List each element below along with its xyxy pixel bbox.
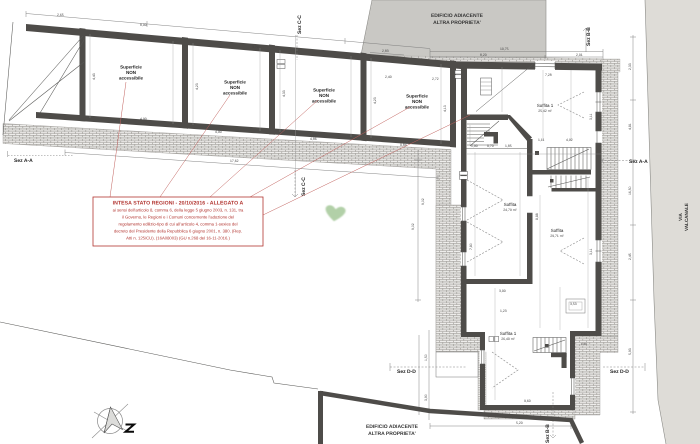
svg-text:3,11: 3,11 bbox=[589, 249, 593, 255]
svg-text:Sez C-C: Sez C-C bbox=[301, 177, 307, 196]
svg-text:NON: NON bbox=[319, 93, 329, 98]
svg-text:2,83: 2,83 bbox=[382, 49, 389, 53]
svg-text:NON: NON bbox=[412, 99, 422, 104]
svg-text:8,88: 8,88 bbox=[535, 213, 539, 220]
svg-text:0,70: 0,70 bbox=[487, 144, 494, 148]
svg-text:1,23: 1,23 bbox=[500, 309, 507, 313]
svg-text:16,50: 16,50 bbox=[628, 186, 632, 195]
svg-text:Sez D-D: Sez D-D bbox=[610, 369, 629, 375]
svg-text:Soffita: Soffita bbox=[504, 202, 517, 207]
svg-text:Sez A-A: Sez A-A bbox=[14, 158, 33, 164]
svg-text:Sez D-D: Sez D-D bbox=[397, 369, 416, 375]
svg-text:1,50: 1,50 bbox=[424, 354, 428, 361]
svg-text:accessibile: accessibile bbox=[405, 105, 430, 110]
svg-text:decreto del Presidente della R: decreto del Presidente della Repubblica … bbox=[114, 229, 242, 234]
svg-text:2,40: 2,40 bbox=[385, 75, 392, 79]
svg-text:1,90: 1,90 bbox=[471, 144, 478, 148]
svg-text:2,01: 2,01 bbox=[576, 53, 583, 57]
svg-text:Soffita 1: Soffita 1 bbox=[500, 331, 517, 336]
svg-text:5,93: 5,93 bbox=[628, 348, 632, 355]
svg-text:Atti n. 125/CU). (16A08003) (G: Atti n. 125/CU). (16A08003) (GU n.268 de… bbox=[126, 236, 230, 241]
svg-text:ALTRA PROPRIETA': ALTRA PROPRIETA' bbox=[368, 431, 416, 437]
svg-text:4,33: 4,33 bbox=[282, 90, 286, 97]
svg-text:regolamento edilizio-tipo di c: regolamento edilizio-tipo di cui all'art… bbox=[118, 222, 237, 227]
svg-text:2,65: 2,65 bbox=[57, 13, 64, 17]
svg-text:accessibile: accessibile bbox=[223, 91, 248, 96]
svg-text:Sez C-C: Sez C-C bbox=[297, 15, 303, 34]
svg-text:EDIFICIO ADIACENTE: EDIFICIO ADIACENTE bbox=[431, 13, 484, 19]
svg-text:accessibile: accessibile bbox=[312, 99, 337, 104]
svg-text:10,75: 10,75 bbox=[500, 47, 509, 51]
svg-text:26,40 m²: 26,40 m² bbox=[501, 337, 515, 341]
svg-text:17,62: 17,62 bbox=[230, 159, 239, 163]
svg-text:5,20: 5,20 bbox=[516, 421, 523, 425]
svg-text:29,71 m²: 29,71 m² bbox=[550, 234, 564, 238]
svg-text:3,90: 3,90 bbox=[424, 394, 428, 401]
svg-text:9,02: 9,02 bbox=[411, 223, 415, 230]
svg-text:accessibile: accessibile bbox=[119, 76, 144, 81]
svg-text:7,80: 7,80 bbox=[469, 243, 473, 250]
svg-text:2,72: 2,72 bbox=[432, 77, 439, 81]
svg-text:Sez B-B: Sez B-B bbox=[545, 424, 551, 443]
svg-text:4,13: 4,13 bbox=[443, 105, 447, 112]
svg-text:3,00: 3,00 bbox=[499, 289, 506, 293]
svg-text:VALCANALE: VALCANALE bbox=[684, 203, 689, 231]
svg-text:Superficie: Superficie bbox=[406, 94, 428, 99]
svg-text:ALTRA PROPRIETA': ALTRA PROPRIETA' bbox=[433, 20, 481, 26]
svg-text:7,28: 7,28 bbox=[545, 73, 552, 77]
svg-text:EDIFICIO ADIACENTE: EDIFICIO ADIACENTE bbox=[366, 424, 419, 430]
svg-text:1,60: 1,60 bbox=[581, 342, 587, 346]
svg-text:INTESA STATO REGIONI - 20/10/2: INTESA STATO REGIONI - 20/10/2016 - ALLE… bbox=[113, 201, 244, 207]
svg-text:NON: NON bbox=[126, 70, 136, 75]
svg-text:VIA: VIA bbox=[678, 212, 683, 220]
svg-text:Sez A-A: Sez A-A bbox=[629, 159, 648, 165]
svg-text:4,90: 4,90 bbox=[140, 117, 147, 121]
svg-text:Superficie: Superficie bbox=[313, 88, 335, 93]
svg-text:25,42 m²: 25,42 m² bbox=[538, 109, 552, 113]
svg-text:4,23: 4,23 bbox=[195, 83, 199, 90]
svg-text:3,11: 3,11 bbox=[589, 114, 593, 120]
svg-text:4,23: 4,23 bbox=[373, 97, 377, 104]
svg-text:Sez B-B: Sez B-B bbox=[586, 27, 592, 46]
svg-text:Superficie: Superficie bbox=[120, 65, 142, 70]
svg-text:3,70: 3,70 bbox=[252, 45, 259, 49]
svg-text:8,90: 8,90 bbox=[140, 23, 147, 27]
svg-text:3,53: 3,53 bbox=[570, 302, 577, 306]
svg-text:1,85: 1,85 bbox=[505, 144, 512, 148]
svg-text:4,86: 4,86 bbox=[310, 137, 317, 141]
svg-text:NON: NON bbox=[230, 85, 240, 90]
svg-text:4,81: 4,81 bbox=[628, 123, 632, 130]
svg-text:1,11: 1,11 bbox=[538, 138, 544, 142]
svg-text:2,33: 2,33 bbox=[628, 63, 632, 70]
svg-text:4,43: 4,43 bbox=[92, 73, 96, 80]
svg-text:8,20: 8,20 bbox=[480, 53, 487, 57]
svg-text:Soffita: Soffita bbox=[551, 228, 564, 233]
svg-text:il Governo, le Regioni e i Com: il Governo, le Regioni e i Comuni concer… bbox=[122, 215, 234, 220]
svg-text:0,84: 0,84 bbox=[400, 143, 407, 147]
svg-text:9,60: 9,60 bbox=[524, 399, 531, 403]
svg-text:2,45: 2,45 bbox=[628, 253, 632, 260]
svg-text:4,92: 4,92 bbox=[566, 138, 573, 142]
svg-text:9,02: 9,02 bbox=[421, 198, 425, 205]
svg-text:4,90: 4,90 bbox=[215, 130, 222, 134]
svg-text:Soffita 1: Soffita 1 bbox=[537, 103, 554, 108]
svg-text:ai sensi dell'articolo 8, comm: ai sensi dell'articolo 8, comma 6, della… bbox=[113, 208, 244, 213]
svg-text:24,79 m²: 24,79 m² bbox=[503, 208, 517, 212]
svg-text:Superficie: Superficie bbox=[224, 80, 246, 85]
